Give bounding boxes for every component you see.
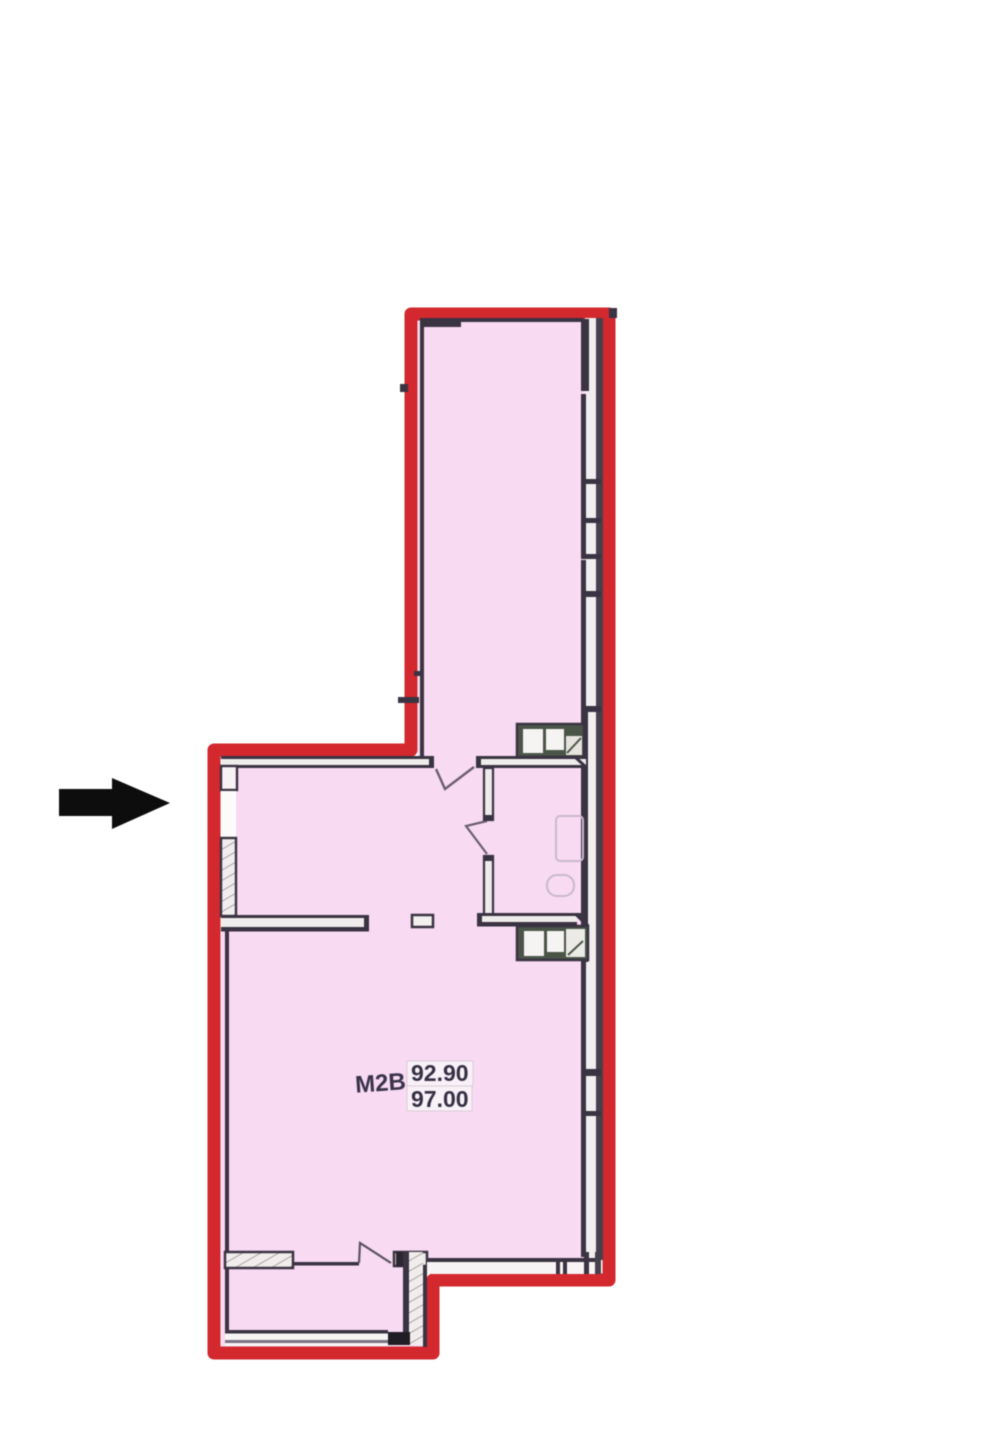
svg-text:92.90: 92.90	[411, 1060, 469, 1086]
svg-text:М2В: М2В	[354, 1068, 406, 1098]
svg-text:97.00: 97.00	[411, 1086, 469, 1112]
